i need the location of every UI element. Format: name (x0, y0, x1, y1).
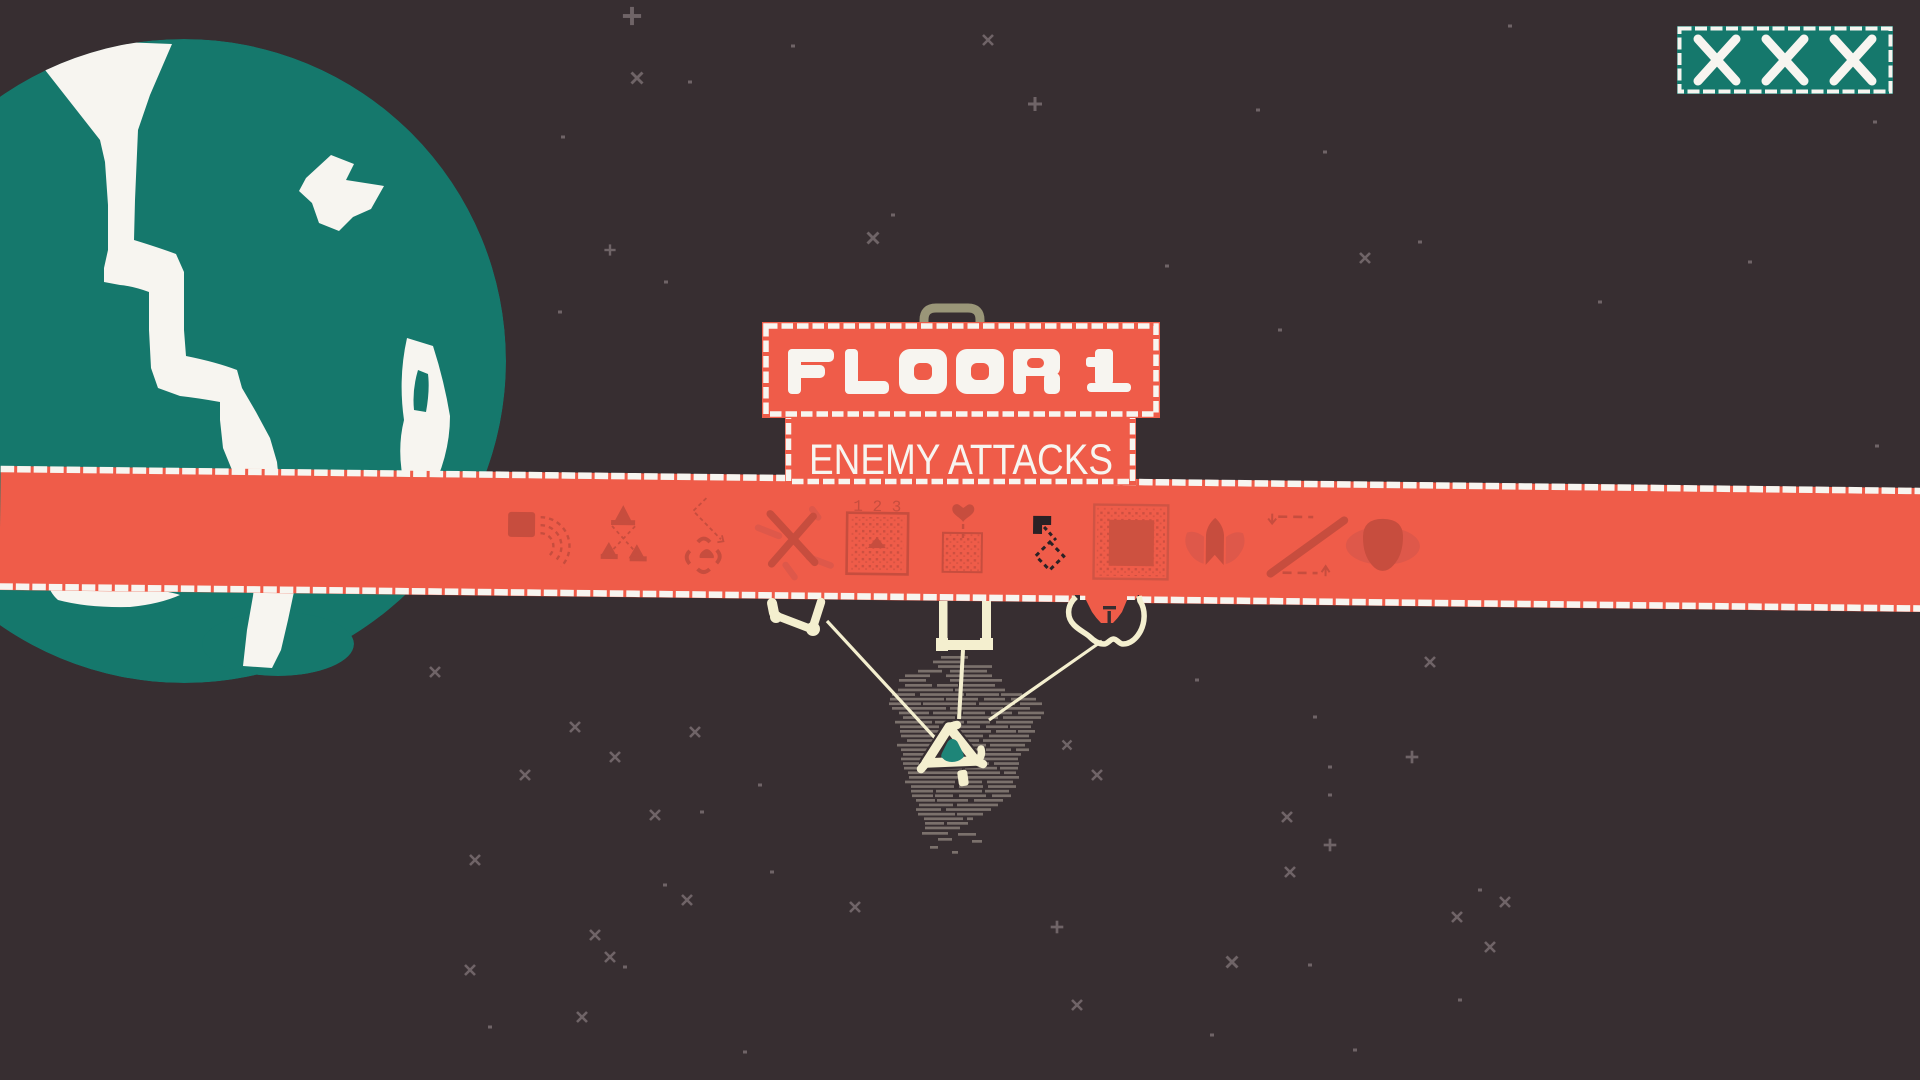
svg-text:1 2 3: 1 2 3 (853, 498, 901, 517)
svg-text:ENEMY ATTACKS: ENEMY ATTACKS (809, 436, 1113, 484)
